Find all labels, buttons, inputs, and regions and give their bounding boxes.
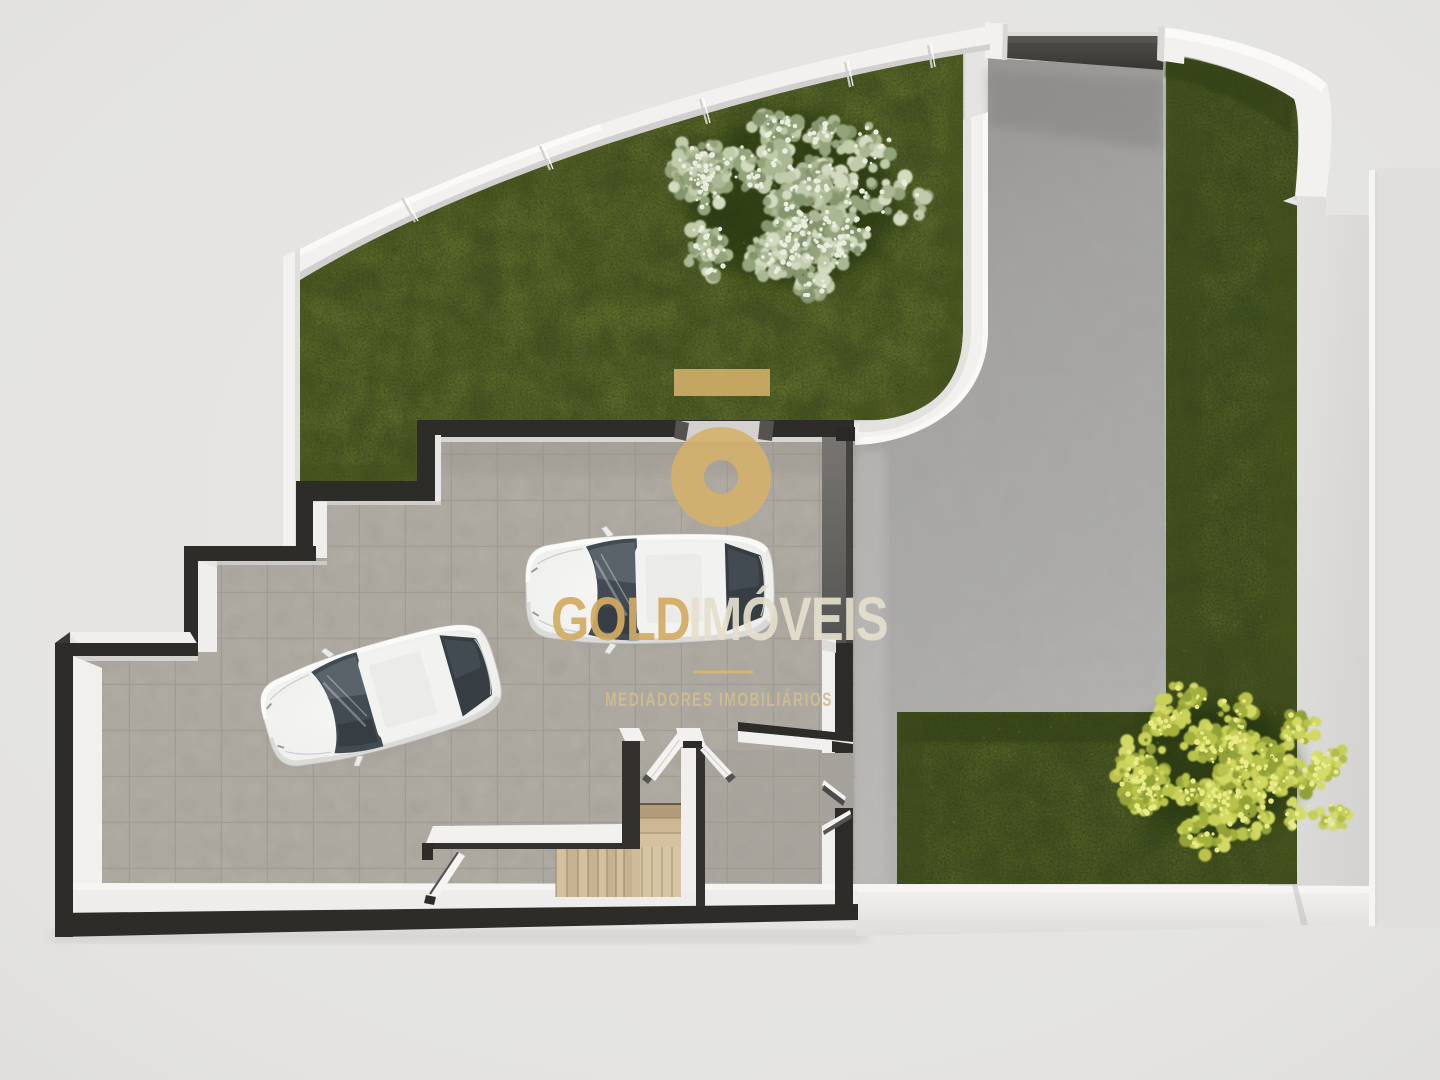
svg-text:MEDIADORES IMOBILIÁRIOS: MEDIADORES IMOBILIÁRIOS bbox=[605, 689, 833, 711]
svg-text:GOLDIMÓVEIS: GOLDIMÓVEIS bbox=[551, 585, 888, 653]
